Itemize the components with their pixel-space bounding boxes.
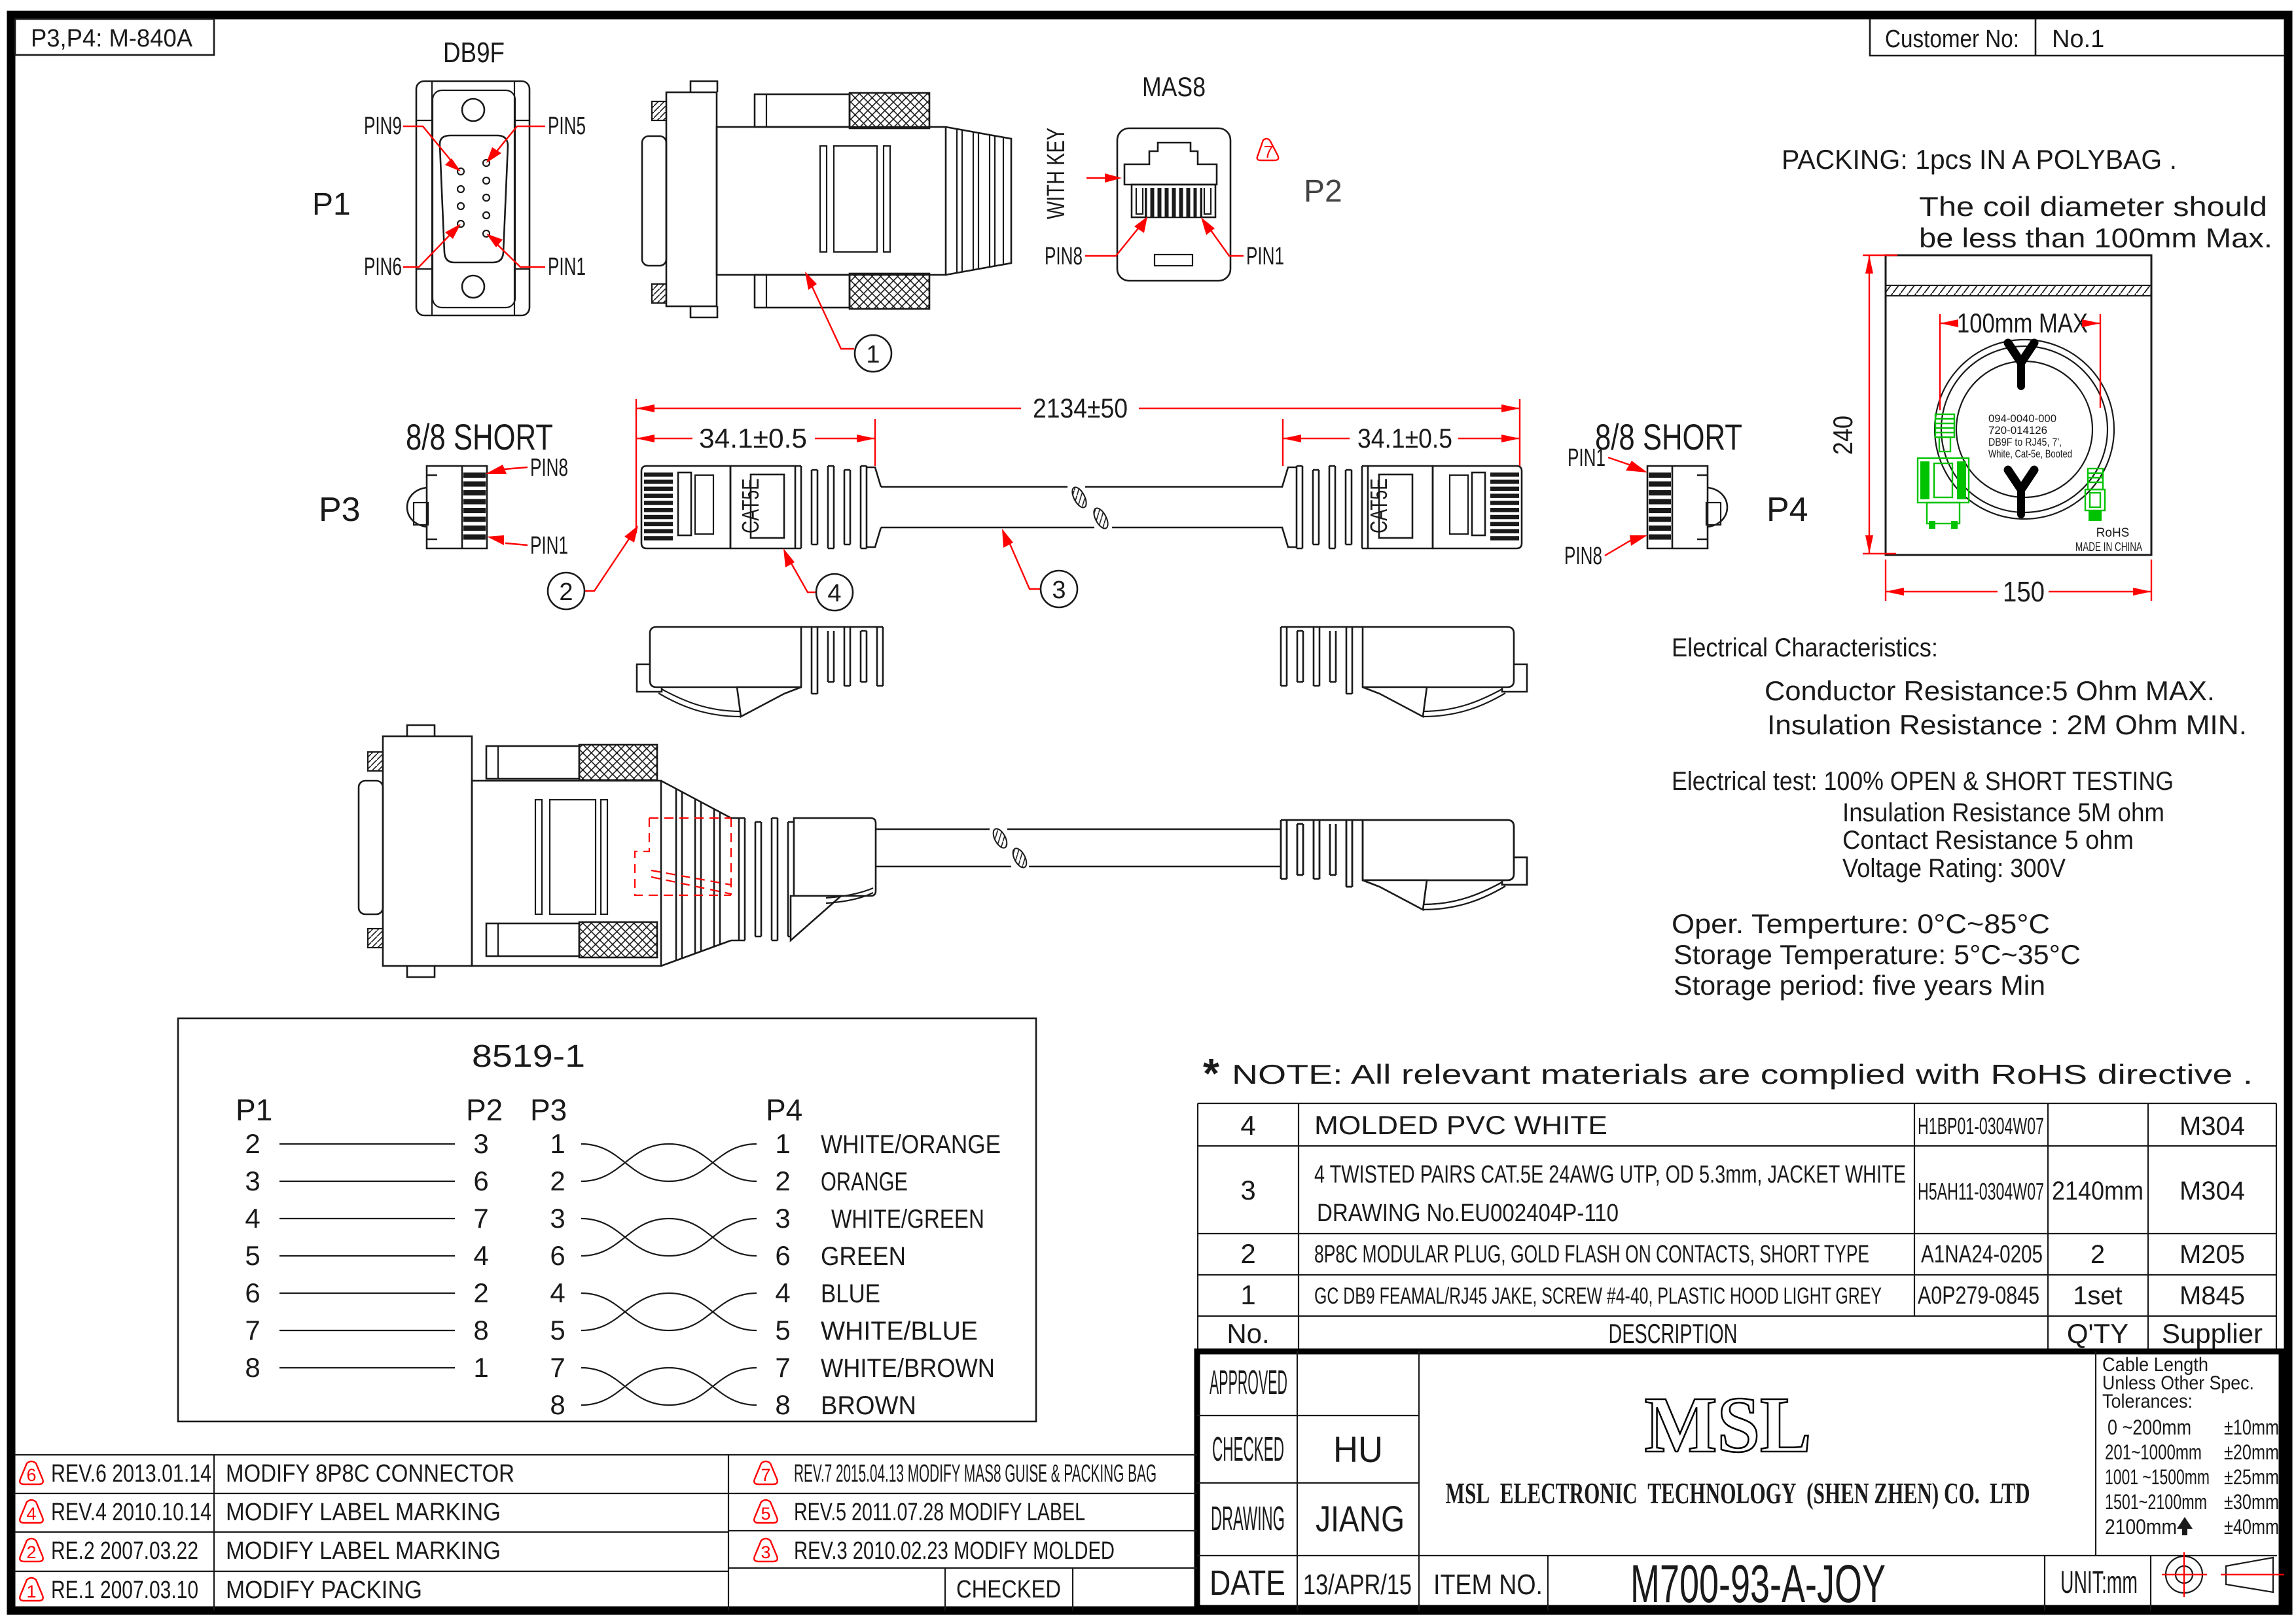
- svg-text:PIN1: PIN1: [548, 253, 586, 281]
- svg-text:34.1±0.5: 34.1±0.5: [699, 423, 807, 454]
- svg-text:Storage Temperature: 5°C~35°: Storage Temperature: 5°C~35°C: [1674, 939, 2081, 970]
- svg-text:Conductor Resistance:5 Ohm: Conductor Resistance:5 Ohm MAX.: [1765, 675, 2215, 706]
- svg-text:M700-93-A-JOY: M700-93-A-JOY: [1630, 1554, 1886, 1614]
- svg-text:1set: 1set: [2073, 1281, 2123, 1310]
- svg-text:REV.7 2015.04.13 MODIFY MAS: REV.7 2015.04.13 MODIFY MAS8 GUISE & PAC…: [794, 1460, 1157, 1488]
- svg-text:4: 4: [827, 580, 841, 607]
- svg-text:5: 5: [761, 1504, 770, 1524]
- svg-text:2: 2: [2090, 1240, 2105, 1269]
- svg-text:Q'TY: Q'TY: [2067, 1318, 2128, 1349]
- svg-text:CAT5E: CAT5E: [737, 478, 764, 533]
- svg-text:A0P279-0845: A0P279-0845: [1918, 1282, 2039, 1310]
- svg-text:PIN8: PIN8: [530, 454, 568, 482]
- svg-text:6: 6: [775, 1240, 790, 1271]
- svg-text:720-014126: 720-014126: [1988, 424, 2047, 437]
- svg-text:34.1±0.5: 34.1±0.5: [1357, 423, 1452, 454]
- svg-text:Storage period: five years: Storage period: five years Min: [1674, 970, 2045, 1001]
- svg-text:6: 6: [245, 1277, 260, 1308]
- svg-text:REV.6 2013.01.14: REV.6 2013.01.14: [51, 1460, 211, 1488]
- svg-text:Electrical Characteristics:: Electrical Characteristics:: [1672, 633, 1938, 662]
- svg-text:5: 5: [550, 1315, 565, 1346]
- svg-text:2: 2: [245, 1128, 260, 1159]
- svg-text:DATE: DATE: [1210, 1563, 1285, 1603]
- svg-text:±40mm: ±40mm: [2224, 1515, 2279, 1539]
- svg-text:A1NA24-0205: A1NA24-0205: [1921, 1241, 2043, 1268]
- svg-text:7: 7: [473, 1203, 488, 1234]
- svg-text:PIN8: PIN8: [1564, 543, 1602, 570]
- svg-text:4: 4: [1240, 1110, 1255, 1141]
- svg-text:2100mm: 2100mm: [2105, 1515, 2177, 1539]
- svg-text:PIN8: PIN8: [1045, 243, 1083, 270]
- svg-text:2: 2: [775, 1166, 790, 1196]
- svg-text:PIN1: PIN1: [1246, 243, 1284, 270]
- svg-text:±25mm: ±25mm: [2224, 1465, 2279, 1489]
- svg-text:DRAWING: DRAWING: [1211, 1500, 1285, 1538]
- svg-text:P4: P4: [766, 1093, 802, 1127]
- svg-text:1: 1: [473, 1352, 488, 1383]
- svg-text:±20mm: ±20mm: [2224, 1440, 2279, 1464]
- svg-text:2: 2: [473, 1277, 488, 1308]
- svg-text:1: 1: [1240, 1279, 1255, 1310]
- svg-text:*: *: [1203, 1050, 1219, 1097]
- svg-text:PIN9: PIN9: [364, 113, 402, 140]
- svg-text:1: 1: [775, 1128, 790, 1159]
- svg-text:REV.4 2010.10.14: REV.4 2010.10.14: [51, 1499, 211, 1526]
- svg-text:No.: No.: [1227, 1318, 1269, 1349]
- svg-text:4 TWISTED PAIRS CAT.5E 24A: 4 TWISTED PAIRS CAT.5E 24AWG UTP, OD 5.3…: [1314, 1161, 1906, 1188]
- svg-text:Insulation Resistance : 2M: Insulation Resistance : 2M Ohm MIN.: [1767, 709, 2247, 740]
- svg-text:CHECKED: CHECKED: [1212, 1431, 1284, 1469]
- svg-text:DB9F to RJ45, 7',: DB9F to RJ45, 7',: [1988, 436, 2062, 448]
- svg-text:MOLDED PVC WHITE: MOLDED PVC WHITE: [1314, 1111, 1607, 1140]
- svg-text:3: 3: [1240, 1175, 1255, 1205]
- svg-text:ITEM NO.: ITEM NO.: [1433, 1569, 1543, 1601]
- svg-text:8: 8: [473, 1315, 488, 1346]
- svg-text:7: 7: [550, 1352, 565, 1383]
- svg-text:3: 3: [245, 1166, 260, 1196]
- svg-text:GC DB9 FEAMAL/RJ45 JAKE, S: GC DB9 FEAMAL/RJ45 JAKE, SCREW #4-40, PL…: [1314, 1283, 1882, 1309]
- svg-text:7: 7: [775, 1352, 790, 1383]
- svg-text:1: 1: [26, 1582, 36, 1601]
- svg-text:PIN6: PIN6: [364, 253, 402, 281]
- svg-text:7: 7: [1264, 142, 1273, 162]
- svg-text:13/APR/15: 13/APR/15: [1303, 1569, 1412, 1601]
- svg-text:4: 4: [473, 1240, 488, 1271]
- svg-text:8/8 SHORT: 8/8 SHORT: [1595, 416, 1742, 457]
- svg-text:P3: P3: [319, 491, 361, 529]
- svg-text:1001 ~1500mm: 1001 ~1500mm: [2105, 1465, 2210, 1489]
- svg-text:WITH KEY: WITH KEY: [1043, 128, 1070, 219]
- svg-text:1: 1: [550, 1128, 565, 1159]
- svg-text:APPROVED: APPROVED: [1210, 1364, 1287, 1402]
- svg-text:GREEN: GREEN: [821, 1242, 906, 1271]
- svg-text:1: 1: [866, 341, 880, 368]
- svg-text:P1: P1: [312, 187, 351, 222]
- svg-text:CHECKED: CHECKED: [956, 1576, 1061, 1603]
- svg-text:WHITE/BLUE: WHITE/BLUE: [821, 1317, 978, 1346]
- svg-text:6: 6: [473, 1166, 488, 1196]
- svg-text:MSL ELECTRONIC TECHNOLOGY (: MSL ELECTRONIC TECHNOLOGY (SHEN ZHEN) CO…: [1446, 1476, 2030, 1510]
- svg-text:BROWN: BROWN: [821, 1391, 916, 1420]
- svg-text:WHITE/ORANGE: WHITE/ORANGE: [821, 1130, 1001, 1159]
- svg-text:Tolerances:: Tolerances:: [2102, 1391, 2193, 1412]
- svg-text:3: 3: [775, 1203, 790, 1234]
- svg-text:P4: P4: [1767, 491, 1808, 529]
- svg-text:3: 3: [761, 1543, 770, 1562]
- svg-text:4: 4: [26, 1504, 36, 1524]
- svg-text:DB9F: DB9F: [443, 37, 505, 69]
- svg-text:M304: M304: [2179, 1112, 2245, 1141]
- svg-text:ORANGE: ORANGE: [821, 1168, 908, 1196]
- svg-text:MSL: MSL: [1645, 1381, 1812, 1469]
- svg-text:6: 6: [550, 1240, 565, 1271]
- svg-text:REV.3 2010.02.23 MODIFY MOL: REV.3 2010.02.23 MODIFY MOLDED: [794, 1537, 1115, 1565]
- svg-text:2: 2: [550, 1166, 565, 1196]
- svg-text:MODIFY LABEL MARKING: MODIFY LABEL MARKING: [226, 1537, 501, 1565]
- svg-text:PIN5: PIN5: [548, 113, 586, 140]
- svg-text:Oper. Temperture: 0°C~85°C: Oper. Temperture: 0°C~85°C: [1672, 908, 2050, 939]
- svg-text:4: 4: [550, 1277, 565, 1308]
- svg-text:Contact Resistance 5 ohm: Contact Resistance 5 ohm: [1842, 826, 2134, 855]
- svg-text:±30mm: ±30mm: [2224, 1490, 2279, 1514]
- svg-text:MADE IN CHINA: MADE IN CHINA: [2075, 541, 2142, 554]
- svg-text:M845: M845: [2179, 1281, 2245, 1310]
- svg-text:H1BP01-0304W07: H1BP01-0304W07: [1918, 1113, 2044, 1139]
- svg-text:7: 7: [761, 1465, 770, 1485]
- svg-text:Electrical test: 100% OPEN: Electrical test: 100% OPEN & SHORT TESTI…: [1672, 767, 2174, 796]
- svg-text:DRAWING No.EU002404P-110: DRAWING No.EU002404P-110: [1317, 1200, 1619, 1227]
- svg-text:The coil diameter should: The coil diameter should: [1919, 191, 2267, 222]
- svg-text:Insulation Resistance 5M oh: Insulation Resistance 5M ohm: [1842, 798, 2164, 827]
- svg-text:No.1: No.1: [2052, 26, 2104, 53]
- svg-text:RE.1 2007.03.10: RE.1 2007.03.10: [51, 1577, 198, 1604]
- svg-text:BLUE: BLUE: [821, 1279, 880, 1308]
- svg-text:3: 3: [1052, 577, 1066, 604]
- svg-text:2: 2: [26, 1543, 36, 1562]
- svg-text:DESCRIPTION: DESCRIPTION: [1609, 1318, 1738, 1349]
- svg-text:4: 4: [775, 1277, 790, 1308]
- svg-text:P2: P2: [466, 1093, 503, 1127]
- svg-text:H5AH11-0304W07: H5AH11-0304W07: [1918, 1178, 2044, 1205]
- svg-text:REV.5 2011.07.28 MODIFY LAB: REV.5 2011.07.28 MODIFY LABEL: [794, 1499, 1085, 1526]
- svg-text:6: 6: [26, 1465, 36, 1485]
- svg-text:NOTE: All relevant material: NOTE: All relevant materials are complie…: [1232, 1059, 2253, 1090]
- svg-text:8519-1: 8519-1: [472, 1039, 585, 1074]
- svg-text:±10mm: ±10mm: [2224, 1416, 2279, 1439]
- svg-text:3: 3: [550, 1203, 565, 1234]
- svg-text:2: 2: [559, 579, 573, 606]
- svg-text:150: 150: [2003, 576, 2045, 608]
- svg-text:WHITE/BROWN: WHITE/BROWN: [821, 1354, 995, 1383]
- svg-text:Supplier: Supplier: [2162, 1318, 2263, 1349]
- svg-text:100mm MAX: 100mm MAX: [1957, 308, 2088, 338]
- svg-text:MAS8: MAS8: [1142, 71, 1206, 102]
- svg-text:P1: P1: [236, 1093, 272, 1127]
- svg-text:PACKING: 1pcs IN A POLYBAG: PACKING: 1pcs IN A POLYBAG .: [1782, 144, 2177, 175]
- svg-text:2140mm: 2140mm: [2052, 1177, 2144, 1205]
- svg-text:8/8 SHORT: 8/8 SHORT: [406, 416, 553, 457]
- svg-text:5: 5: [245, 1240, 260, 1271]
- svg-text:RoHS: RoHS: [2096, 526, 2130, 540]
- svg-text:PIN1: PIN1: [530, 532, 568, 560]
- svg-text:M205: M205: [2179, 1240, 2245, 1269]
- svg-text:240: 240: [1827, 416, 1858, 455]
- svg-text:MODIFY PACKING: MODIFY PACKING: [226, 1577, 422, 1604]
- svg-text:7: 7: [245, 1315, 260, 1346]
- svg-text:094-0040-000: 094-0040-000: [1988, 412, 2056, 425]
- svg-text:White, Cat-5e, Booted: White, Cat-5e, Booted: [1988, 448, 2072, 460]
- svg-text:0 ~200mm: 0 ~200mm: [2108, 1416, 2191, 1439]
- svg-text:8: 8: [550, 1389, 565, 1420]
- svg-text:Customer No:: Customer No:: [1885, 26, 2019, 53]
- svg-text:be less than 100mm Max.: be less than 100mm Max.: [1919, 223, 2272, 253]
- svg-text:CAT5E: CAT5E: [1365, 478, 1392, 533]
- svg-text:201~1000mm: 201~1000mm: [2105, 1440, 2202, 1464]
- svg-text:UNIT:mm: UNIT:mm: [2060, 1565, 2138, 1600]
- svg-text:2: 2: [1240, 1238, 1255, 1269]
- svg-text:P2: P2: [1304, 174, 1342, 209]
- svg-text:JIANG: JIANG: [1316, 1498, 1405, 1539]
- svg-text:WHITE/GREEN: WHITE/GREEN: [831, 1205, 984, 1234]
- svg-text:8: 8: [775, 1389, 790, 1420]
- svg-text:8: 8: [245, 1352, 260, 1383]
- svg-text:4: 4: [245, 1203, 260, 1234]
- svg-text:1501~2100mm: 1501~2100mm: [2105, 1490, 2207, 1514]
- svg-text:P3,P4: M-840A: P3,P4: M-840A: [31, 25, 193, 52]
- svg-text:Voltage Rating: 300V: Voltage Rating: 300V: [1842, 854, 2066, 883]
- svg-text:MODIFY LABEL MARKING: MODIFY LABEL MARKING: [226, 1499, 501, 1526]
- svg-text:5: 5: [775, 1315, 790, 1346]
- svg-text:P3: P3: [530, 1093, 567, 1127]
- svg-text:3: 3: [473, 1128, 488, 1159]
- svg-text:2134±50: 2134±50: [1033, 393, 1128, 423]
- svg-text:PIN1: PIN1: [1568, 444, 1605, 472]
- svg-text:HU: HU: [1333, 1429, 1383, 1470]
- svg-text:MODIFY 8P8C CONNECTOR: MODIFY 8P8C CONNECTOR: [226, 1460, 514, 1488]
- svg-text:M304: M304: [2179, 1177, 2245, 1205]
- svg-text:RE.2 2007.03.22: RE.2 2007.03.22: [51, 1537, 198, 1565]
- svg-text:8P8C MODULAR PLUG, GOLD FL: 8P8C MODULAR PLUG, GOLD FLASH ON CONTACT…: [1314, 1241, 1869, 1268]
